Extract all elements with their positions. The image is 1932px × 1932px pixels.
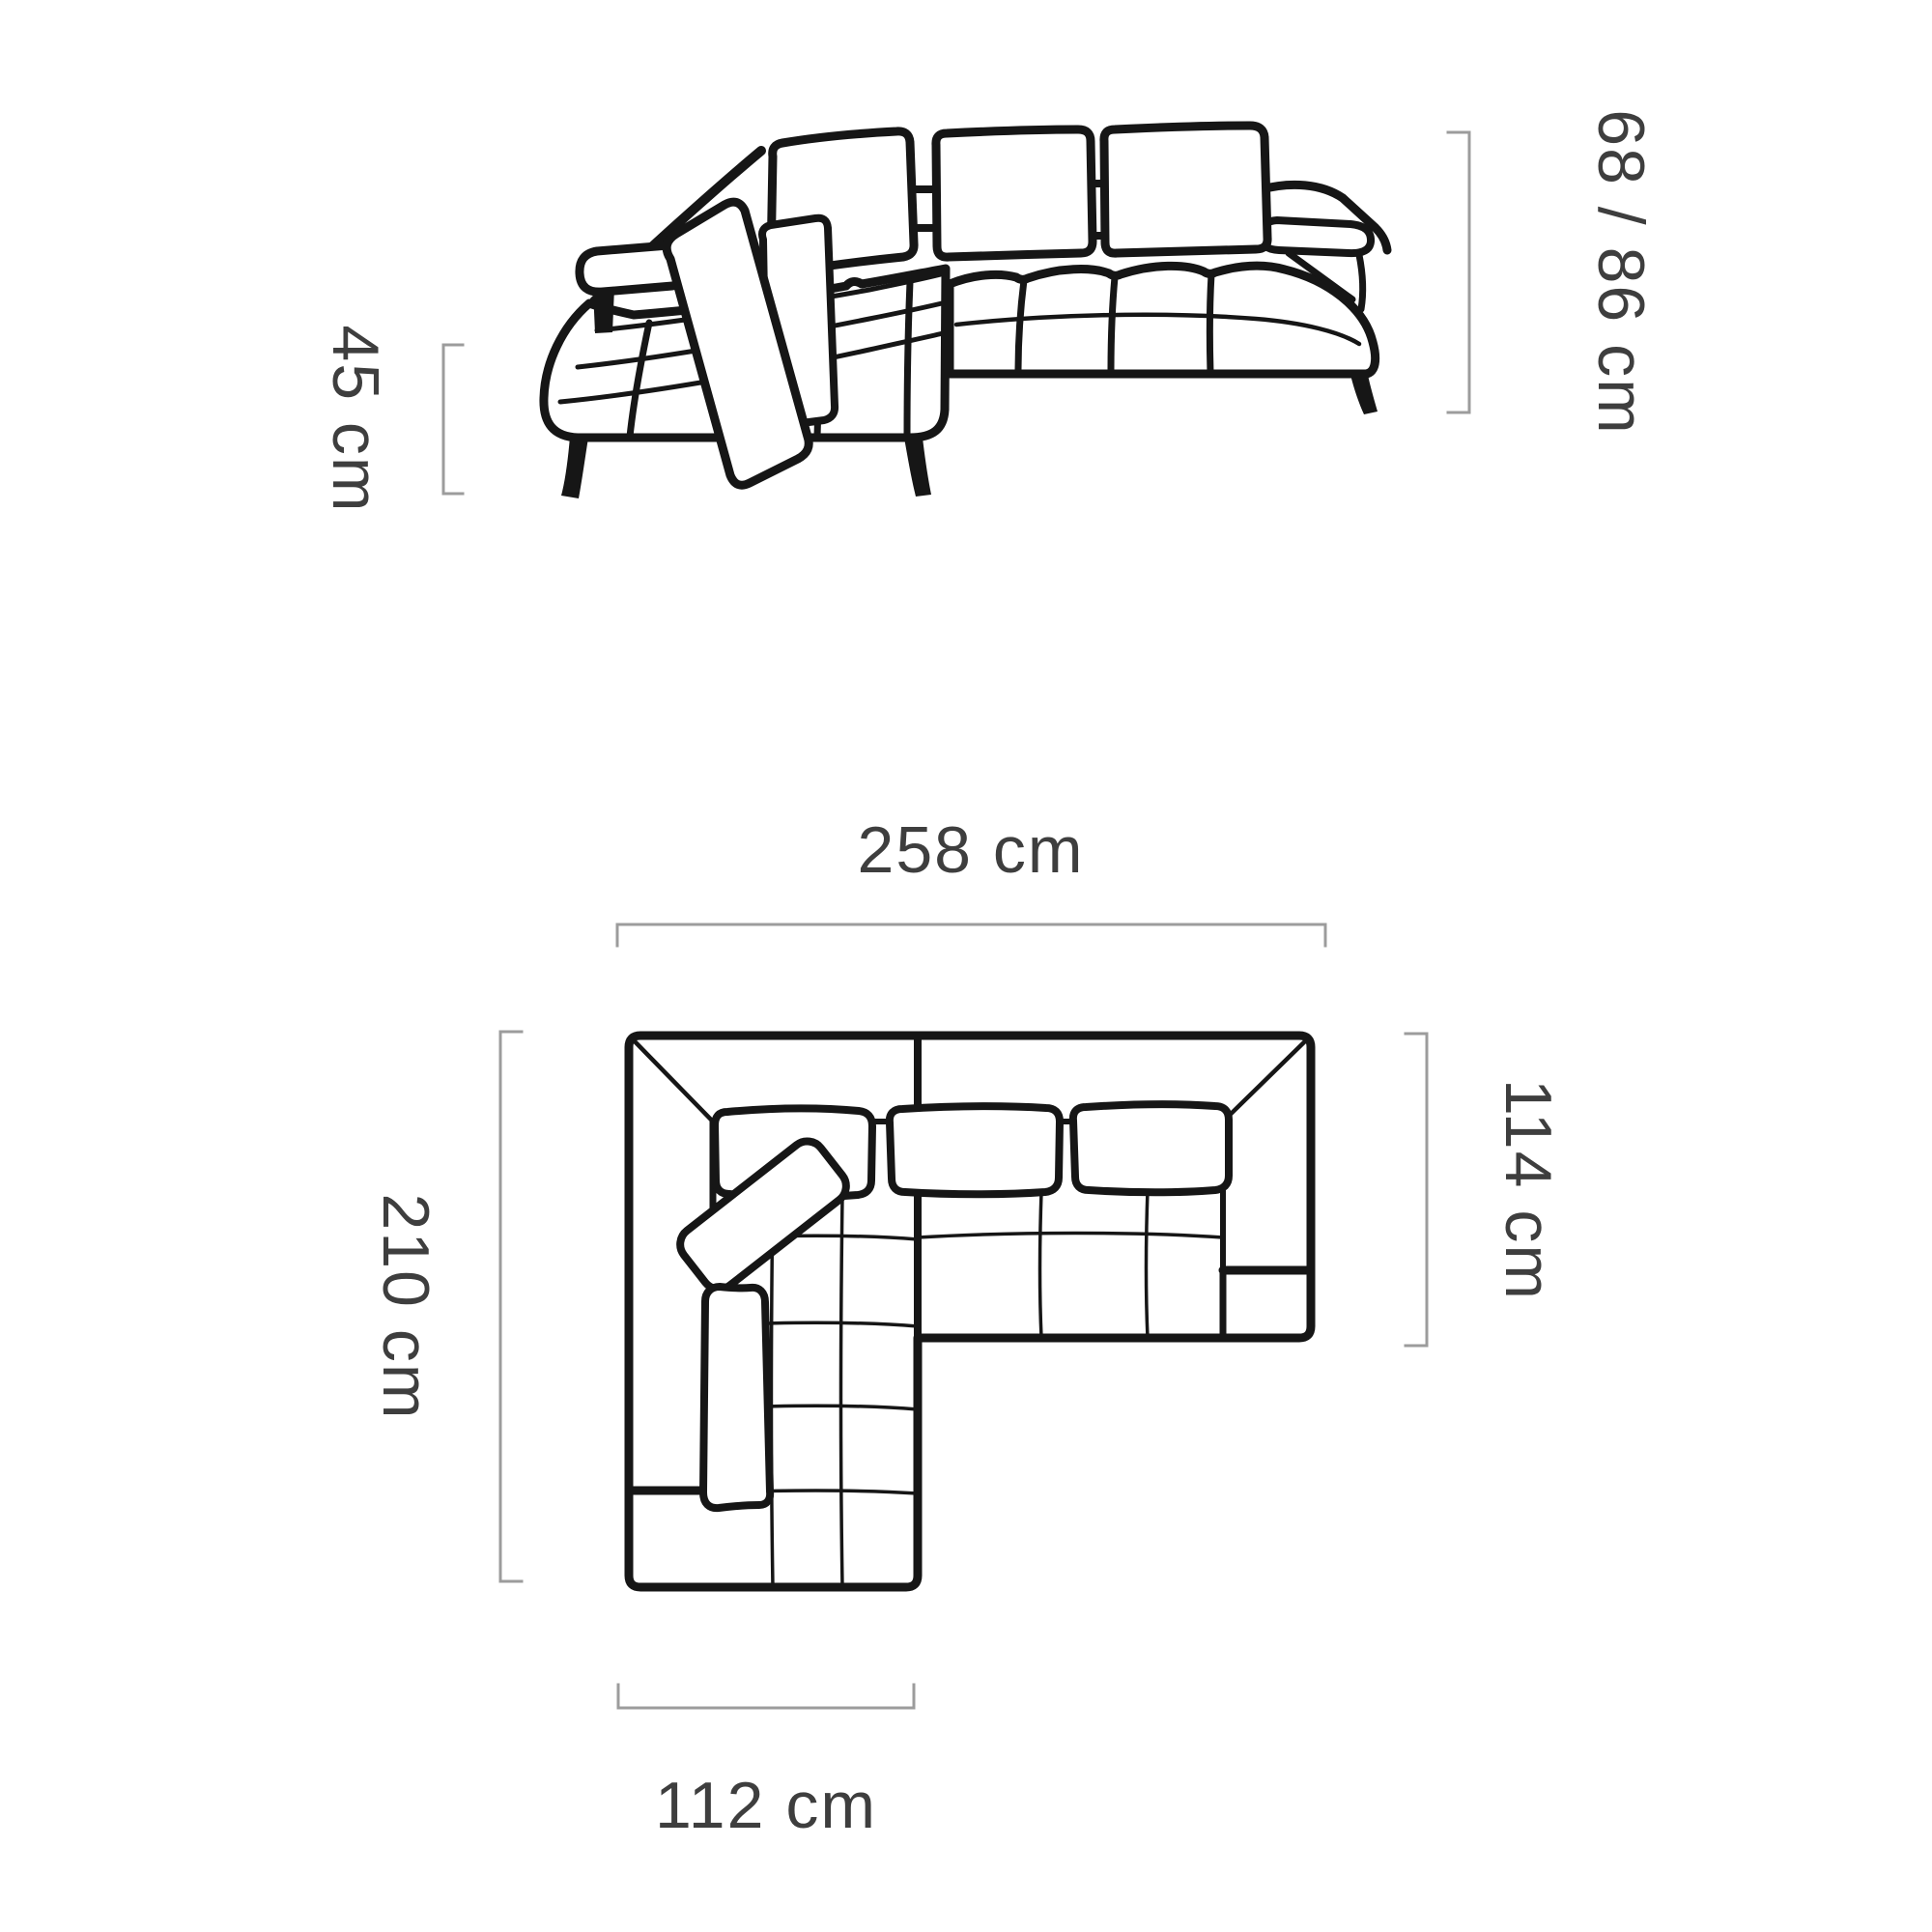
plan-back-cushion-2 [890, 1106, 1060, 1194]
sofa-chaise-seam-4 [907, 282, 910, 437]
dim-label-total-depth: 210 cm [369, 1194, 442, 1421]
dim-bracket-total-depth [500, 1032, 522, 1581]
sofa-front-left-leg [561, 437, 588, 498]
dim-bracket-arm-section-depth [1406, 1034, 1427, 1346]
dim-label-arm-section-depth: 114 cm [1492, 1079, 1565, 1301]
plan-grid-line [1147, 1190, 1149, 1338]
corner-sofa-dimension-diagram: 45 cm 68 / 86 cm 258 cm 210 cm 114 cm 11… [0, 0, 1932, 1932]
front-elevation-view [544, 126, 1387, 498]
sofa-back-cushion-3 [1104, 126, 1267, 253]
plan-grid-line [841, 1196, 843, 1587]
dim-bracket-total-width [617, 924, 1325, 946]
dimension-diagram-canvas: 45 cm 68 / 86 cm 258 cm 210 cm 114 cm 11… [0, 0, 1932, 1932]
dim-bracket-backrest-height [1448, 132, 1469, 412]
sofa-right-leg [1350, 375, 1378, 414]
sofa-middle-leg [904, 438, 931, 497]
sofa-right-armrest-strut-vertical [1359, 255, 1363, 309]
top-plan-view [629, 1036, 1311, 1587]
plan-grid-line [1040, 1192, 1042, 1338]
dim-label-total-width: 258 cm [858, 813, 1085, 887]
dim-label-chaise-width: 112 cm [655, 1769, 877, 1842]
plan-side-pillow [703, 1287, 770, 1508]
plan-back-cushion-3 [1073, 1104, 1229, 1192]
dim-label-backrest-height: 68 / 86 cm [1584, 109, 1658, 436]
sofa-left-armrest-post [593, 288, 614, 333]
sofa-back-cushion-2 [936, 129, 1093, 257]
dim-bracket-seat-height [443, 345, 463, 494]
sofa-right-armrest-pad [1261, 220, 1371, 253]
dim-bracket-chaise-width [618, 1685, 914, 1708]
sofa-right-seat-seam-2 [1111, 277, 1115, 372]
dim-label-seat-height: 45 cm [319, 325, 392, 513]
sofa-right-seat-seam-3 [1209, 274, 1211, 372]
